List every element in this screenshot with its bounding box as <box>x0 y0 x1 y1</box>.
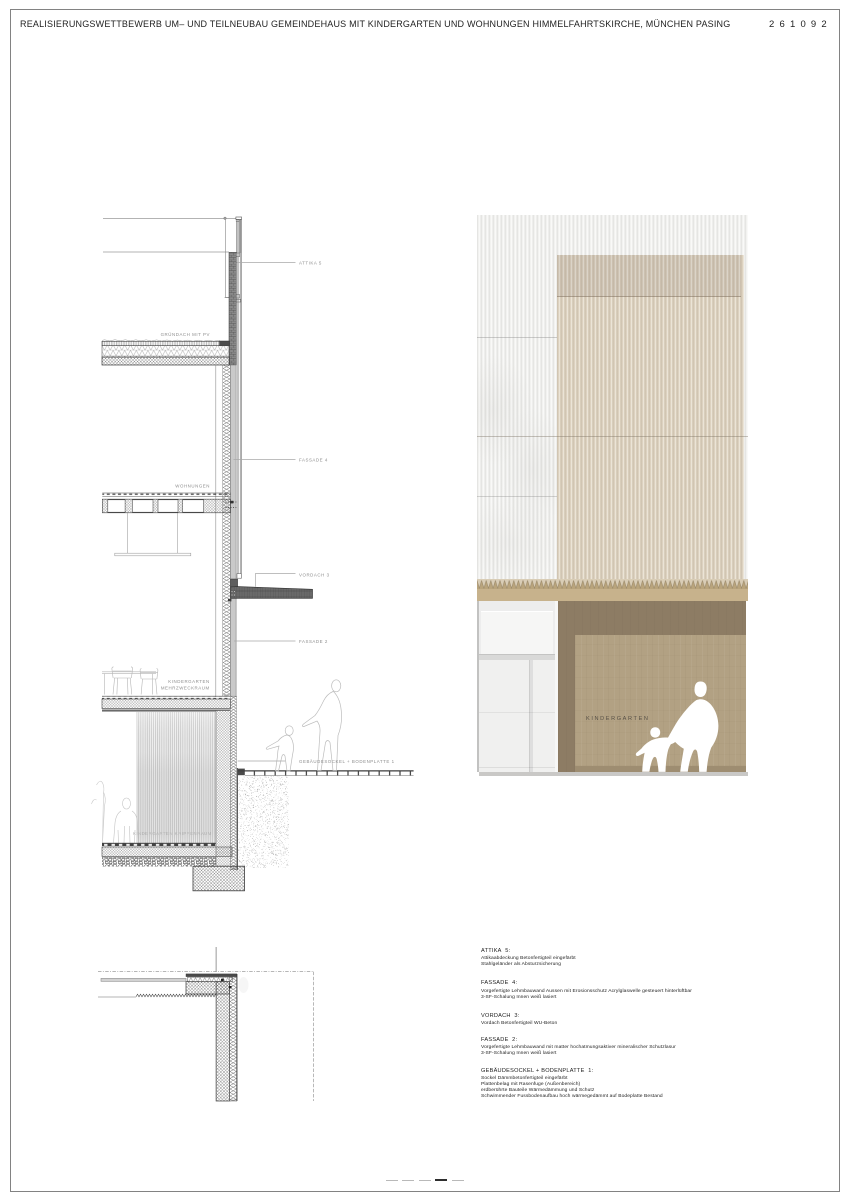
svg-text:VORDACH 3: VORDACH 3 <box>299 572 330 577</box>
svg-text:WOHNUNGEN: WOHNUNGEN <box>175 483 210 488</box>
svg-text:GRÜNDACH MIT PV: GRÜNDACH MIT PV <box>161 332 210 337</box>
svg-text:GEBÄUDESOCKEL + BODENPLATTE 1: GEBÄUDESOCKEL + BODENPLATTE 1 <box>299 759 395 764</box>
svg-text:KINDERGARTEN: KINDERGARTEN <box>168 679 209 684</box>
svg-text:ATTIKA 5: ATTIKA 5 <box>299 260 322 265</box>
svg-text:FASSADE 2: FASSADE 2 <box>299 639 328 644</box>
svg-text:MEHRZWECKRAUM: MEHRZWECKRAUM <box>161 686 210 691</box>
svg-text:KINDERGARTEN KRIPPENRAUM: KINDERGARTEN KRIPPENRAUM <box>133 831 212 836</box>
svg-text:FASSADE 4: FASSADE 4 <box>299 458 328 463</box>
